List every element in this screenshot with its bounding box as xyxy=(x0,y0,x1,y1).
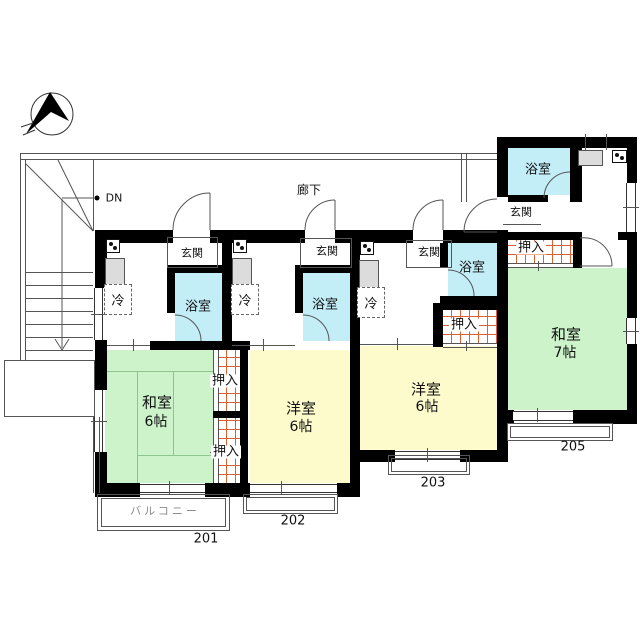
unit-203-room-label: 洋室 xyxy=(411,383,441,398)
wall xyxy=(627,137,637,183)
stair-tread xyxy=(26,272,93,273)
wall xyxy=(497,232,582,240)
compass-icon xyxy=(21,92,73,135)
sliding-door xyxy=(443,347,497,348)
tatami-line xyxy=(137,455,213,456)
corridor-edge xyxy=(20,153,497,154)
sink-icon xyxy=(359,260,379,289)
room-opening xyxy=(107,345,150,346)
fridge-box: 冷 xyxy=(104,284,132,315)
unit-203-room-size: 6帖 xyxy=(416,400,439,414)
unit-202-bath-label: 浴室 xyxy=(312,299,338,312)
unit-202-room-size: 6帖 xyxy=(290,420,313,434)
unit-201-entrance-label: 玄関 xyxy=(181,248,203,259)
unit-202-room-label: 洋室 xyxy=(286,402,316,417)
window-tick xyxy=(169,481,170,495)
unit-201-balcony-label: バルコニー xyxy=(130,506,200,517)
wall xyxy=(433,310,443,347)
tatami-line xyxy=(173,371,174,455)
window xyxy=(250,484,337,493)
sink-icon xyxy=(105,258,125,287)
unit-205-number: 205 xyxy=(561,441,586,454)
unit-201-closet-upper-label: 押入 xyxy=(210,375,240,388)
wall-tick xyxy=(585,134,586,150)
sliding-door xyxy=(508,267,573,268)
window-tick xyxy=(623,331,639,332)
wall xyxy=(213,411,248,418)
fridge-box: 冷 xyxy=(231,284,259,315)
corridor-label: 廊下 xyxy=(297,184,321,196)
stair-edge xyxy=(93,159,94,231)
opening-tick xyxy=(133,339,134,351)
stair-tread xyxy=(26,350,93,351)
unit-205-bath-label: 浴室 xyxy=(525,164,551,177)
wall-tick xyxy=(606,134,607,150)
stairs-linework xyxy=(26,160,100,350)
unit-201-room-label: 和室 xyxy=(142,396,172,411)
fridge-label: 冷 xyxy=(364,293,377,312)
wall xyxy=(433,303,508,310)
floor-plan: 冷 冷 冷 DN 廊下 xyxy=(0,0,640,639)
sink-icon xyxy=(232,258,252,287)
unit-205-closet-label: 押入 xyxy=(516,242,546,255)
fridge-label: 冷 xyxy=(111,290,124,309)
stair-tread xyxy=(26,285,93,286)
window-tick xyxy=(537,408,538,422)
wall xyxy=(618,232,627,240)
tatami-line xyxy=(137,371,138,483)
unit-201-bath-label: 浴室 xyxy=(185,301,211,314)
unit-205-entrance-label: 玄関 xyxy=(510,207,532,218)
building-edge xyxy=(93,417,94,493)
sliding-door-tick xyxy=(466,341,467,351)
window xyxy=(140,484,205,493)
window-tick xyxy=(623,207,639,208)
sliding-door xyxy=(443,343,497,344)
stove-icon xyxy=(106,239,120,253)
unit-202-entrance-label: 玄関 xyxy=(316,246,338,257)
stove-icon xyxy=(360,241,374,255)
unit-205-balcony-inner xyxy=(510,426,610,438)
stove-icon xyxy=(612,150,627,163)
wall xyxy=(295,273,303,313)
unit-201-number: 201 xyxy=(194,533,219,546)
unit-201-closet-lower-label: 押入 xyxy=(211,446,241,459)
stairs-dn-label: DN xyxy=(106,193,123,204)
sink-icon xyxy=(578,150,603,166)
wall xyxy=(167,273,175,313)
window xyxy=(513,411,573,421)
wall xyxy=(497,148,508,197)
window-tick xyxy=(281,481,282,495)
stove-icon xyxy=(233,239,247,253)
stair-landing xyxy=(4,360,95,417)
corridor-edge xyxy=(20,153,21,360)
unit-203-balcony-inner xyxy=(391,458,467,472)
opening-tick xyxy=(397,338,398,350)
unit-205-room-size: 7帖 xyxy=(554,346,577,360)
wall xyxy=(497,232,508,452)
unit-203-entrance-label: 玄関 xyxy=(418,247,440,258)
fridge-label: 冷 xyxy=(238,290,251,309)
unit-205-room-label: 和室 xyxy=(551,328,581,343)
unit-201-room-size: 6帖 xyxy=(145,415,168,429)
stair-tread xyxy=(26,337,93,338)
wall xyxy=(627,232,637,318)
stair-tread xyxy=(26,298,93,299)
sliding-door xyxy=(508,263,573,264)
unit-203-number: 203 xyxy=(421,477,446,490)
unit-203-bath-label: 浴室 xyxy=(459,262,485,275)
fridge-box: 冷 xyxy=(357,287,385,318)
wall xyxy=(497,137,637,148)
building-edge xyxy=(99,417,100,493)
stair-tread xyxy=(26,311,93,312)
wall xyxy=(508,195,548,202)
unit-205-entrance-step xyxy=(503,224,541,225)
opening-tick xyxy=(263,339,264,351)
unit-202-balcony-inner xyxy=(246,497,335,511)
corridor-partition xyxy=(466,153,467,202)
unit-203-closet-label: 押入 xyxy=(449,319,479,332)
unit-202-number: 202 xyxy=(281,515,306,528)
wall xyxy=(95,340,107,390)
wall xyxy=(210,230,305,243)
tatami-line xyxy=(105,371,213,372)
sliding-door-tick xyxy=(538,261,539,271)
wall xyxy=(573,410,637,424)
corridor-edge xyxy=(25,159,26,360)
corridor-edge xyxy=(20,159,497,160)
wall xyxy=(440,296,497,303)
corridor-partition xyxy=(461,153,462,202)
stair-tread xyxy=(26,324,93,325)
wall xyxy=(573,240,582,268)
